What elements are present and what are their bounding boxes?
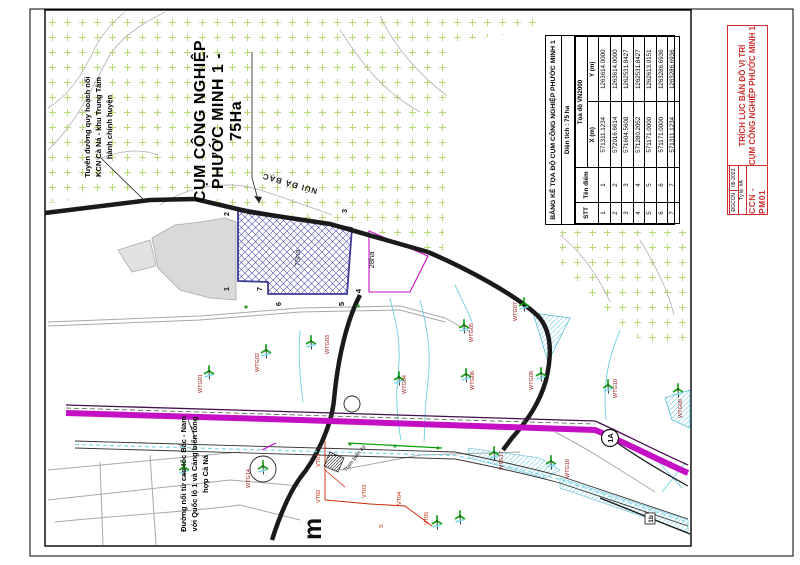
vertex-label: 2 (222, 212, 231, 216)
cell-y: 1263286.6936 (668, 37, 680, 103)
turbine-label: WTG02 (255, 353, 261, 372)
cell-stt: 7 (668, 203, 680, 224)
turbine-label: WTG18 (565, 459, 571, 478)
vt-point-label: VT02 (316, 490, 322, 503)
turbine-label: WTG14 (246, 469, 252, 488)
cell-y: 1263614.0000 (599, 37, 611, 103)
coord-table-title: BẢNG KÊ TỌA ĐỘ CỤM CÔNG NGHIỆP PHƯỚC MIN… (546, 36, 562, 224)
col-header-stt: STT (576, 203, 599, 224)
cell-point: 1 (599, 168, 611, 203)
cell-point: 2 (610, 168, 622, 203)
table-row: 11571311.12341263614.0000 (599, 37, 611, 224)
table-row: 77571311.12341263286.6936 (668, 37, 680, 224)
map-title-line1: CỤM CÔNG NGHIỆP (192, 37, 210, 205)
cell-stt: 2 (610, 203, 622, 224)
drawing-code: CCN - PM01 (747, 166, 767, 214)
vt-point-label: VT01 (316, 454, 322, 467)
note-line: hợp Cà Ná (200, 413, 211, 535)
col-header-group: Tọa độ VN2000 (576, 37, 588, 168)
col-header-x: X (m) (587, 102, 599, 168)
note-line: KCN Cà Ná - khu Trung Tâm (93, 66, 104, 188)
cell-stt: 3 (622, 203, 634, 224)
map-canvas: Trạm biến áp 1A 1b 75ha 28ha S 1234567 W… (0, 0, 800, 565)
cell-stt: 4 (633, 203, 645, 224)
coord-table-area: Diện tích : 75 ha (562, 36, 575, 224)
area-28ha-label: 28ha (367, 251, 376, 269)
turbine-label: WTG17 (499, 451, 505, 470)
cell-point: 4 (633, 168, 645, 203)
turbine-label: WTG05 (469, 323, 475, 342)
turbine-label: WTG06 (470, 371, 476, 390)
vertex-label: 3 (340, 209, 349, 213)
cell-y: 1263286.6936 (656, 37, 668, 103)
turbine-label: WTG08 (529, 371, 535, 390)
road-box-1b: 1b (645, 513, 655, 524)
table-row: 44571280.20521262531.8427 (633, 37, 645, 224)
cell-y: 1262531.8427 (633, 37, 645, 103)
cell-stt: 5 (645, 203, 657, 224)
turbine-label: WTG03 (325, 335, 331, 354)
route-shield-label: 1A (606, 433, 615, 443)
title-block-author: ĐGCCN (730, 190, 738, 214)
title-block-date: 06-2022 (730, 166, 738, 189)
cell-point: 6 (656, 168, 668, 203)
title-block-meta-row: ĐGCCN 06-2022 (730, 166, 739, 214)
turbine-label: WTG01 (198, 374, 204, 393)
map-title-line3: 75Ha (228, 37, 246, 205)
table-row: 22572016.66141263614.0000 (610, 37, 622, 224)
note-expressway: Đường nối từ cao tốc Bắc - Nam với Quốc … (178, 413, 212, 535)
road-box-label: 1b (648, 515, 655, 523)
title-block-left: ĐGCCN 06-2022 Tỷ lệ: #A CCN - PM01 (728, 165, 767, 214)
cell-y: 1262613.0151 (645, 37, 657, 103)
table-row: 55571171.00001262613.0151 (645, 37, 657, 224)
table-row: 66571171.00001263286.6936 (656, 37, 668, 224)
cell-point: 7 (668, 168, 680, 203)
turbine-label: WTG07 (513, 302, 519, 321)
route-shield-1a: 1A (602, 430, 619, 447)
turbine-label: WTG10 (613, 379, 619, 398)
big-letter: m (300, 506, 328, 540)
col-header-point: Tên điểm (576, 168, 599, 203)
vt-point-label: VT04 (397, 492, 403, 505)
area-75ha-label: 75ha (293, 249, 302, 267)
cell-y: 1262531.8427 (622, 37, 634, 103)
title-block-scale: Tỷ lệ: #A (739, 166, 747, 214)
cell-point: 3 (622, 168, 634, 203)
cell-stt: 1 (599, 203, 611, 224)
cell-x: 571280.2052 (633, 102, 645, 168)
cell-x: 571311.1234 (668, 102, 680, 168)
cell-y: 1263614.0000 (610, 37, 622, 103)
turbine-label: WTG04 (402, 375, 408, 394)
cell-x: 572016.6614 (610, 102, 622, 168)
drawing-sheet: Trạm biến áp 1A 1b 75ha 28ha S 1234567 W… (0, 0, 800, 565)
coordinate-table: BẢNG KÊ TỌA ĐỘ CỤM CÔNG NGHIỆP PHƯỚC MIN… (545, 35, 675, 225)
col-header-y: Y (m) (587, 37, 599, 103)
cell-x: 571311.1234 (599, 102, 611, 168)
note-line: với Quốc lộ 1 và Cảng biển tổng (189, 413, 200, 535)
map-title-line2: PHƯỚC MINH 1 - (210, 37, 228, 205)
vertex-label: 5 (337, 302, 346, 306)
title-block-line2: CỤM CÔNG NGHIỆP PHƯỚC MINH 1 (748, 26, 758, 165)
note-line: hành chính huyện (104, 66, 115, 188)
map-title: CỤM CÔNG NGHIỆP PHƯỚC MINH 1 - 75Ha (192, 37, 248, 205)
title-block: ĐGCCN 06-2022 Tỷ lệ: #A CCN - PM01 TRÍCH… (727, 25, 768, 215)
vertex-label: 7 (255, 287, 264, 291)
note-planned-road: Tuyến đường quy hoạch nối KCN Cà Ná - kh… (82, 66, 116, 188)
vertex-label: 1 (222, 287, 231, 291)
cell-point: 5 (645, 168, 657, 203)
cell-x: 571604.5608 (622, 102, 634, 168)
turbine-label: WTG09 (678, 399, 684, 418)
cell-stt: 6 (656, 203, 668, 224)
note-line: Tuyến đường quy hoạch nối (82, 66, 93, 188)
title-block-main: TRÍCH LỤC BẢN ĐỒ VỊ TRÍ CỤM CÔNG NGHIỆP … (728, 26, 767, 165)
note-line: Đường nối từ cao tốc Bắc - Nam (178, 413, 189, 535)
s-mark: S (379, 524, 385, 528)
cell-x: 571171.0000 (656, 102, 668, 168)
table-row: 33571604.56081262531.8427 (622, 37, 634, 224)
cell-x: 571171.0000 (645, 102, 657, 168)
vt-point-label: VT05 (424, 512, 430, 525)
vertex-label: 6 (274, 302, 283, 306)
title-block-line1: TRÍCH LỤC BẢN ĐỒ VỊ TRÍ (738, 45, 748, 147)
vt-point-label: VT03 (362, 485, 368, 498)
